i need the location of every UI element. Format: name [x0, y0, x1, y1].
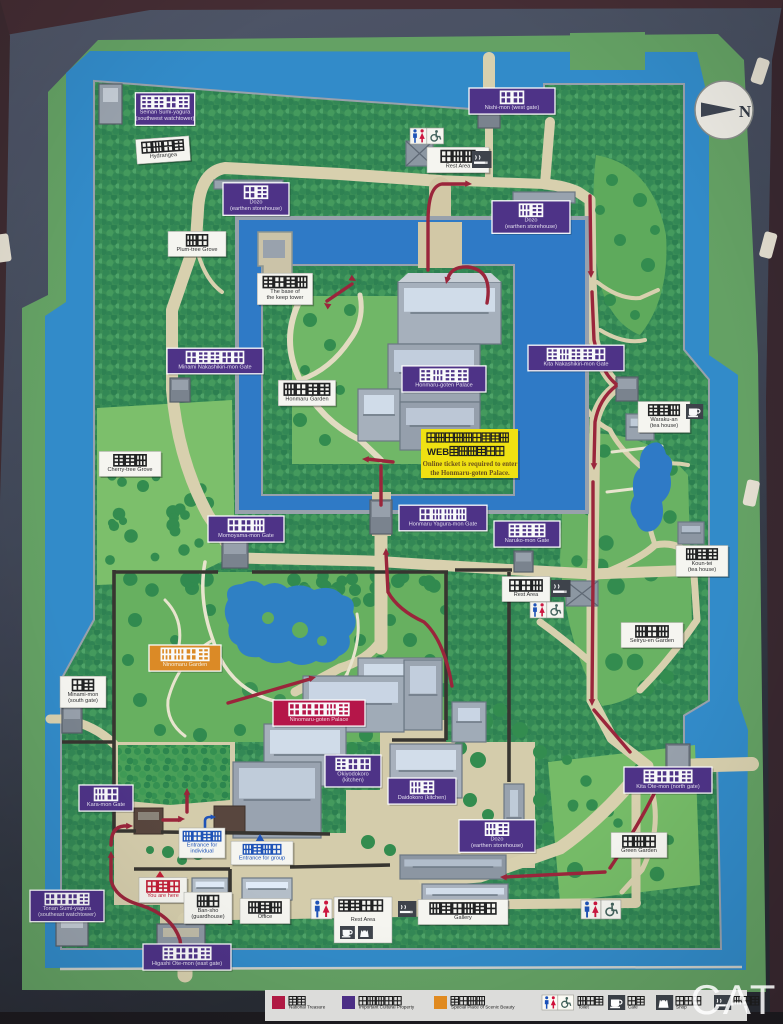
svg-text:Important Cultural Property: Important Cultural Property [359, 1004, 415, 1009]
svg-text:Café: Café [628, 1004, 638, 1009]
svg-text:Special Place of Scenic Beauty: Special Place of Scenic Beauty [451, 1004, 515, 1009]
svg-text:CAT: CAT [691, 976, 778, 1023]
svg-text:National Treasure: National Treasure [289, 1004, 326, 1009]
svg-text:Shop: Shop [676, 1004, 687, 1009]
svg-text:Toilet: Toilet [578, 1004, 589, 1009]
